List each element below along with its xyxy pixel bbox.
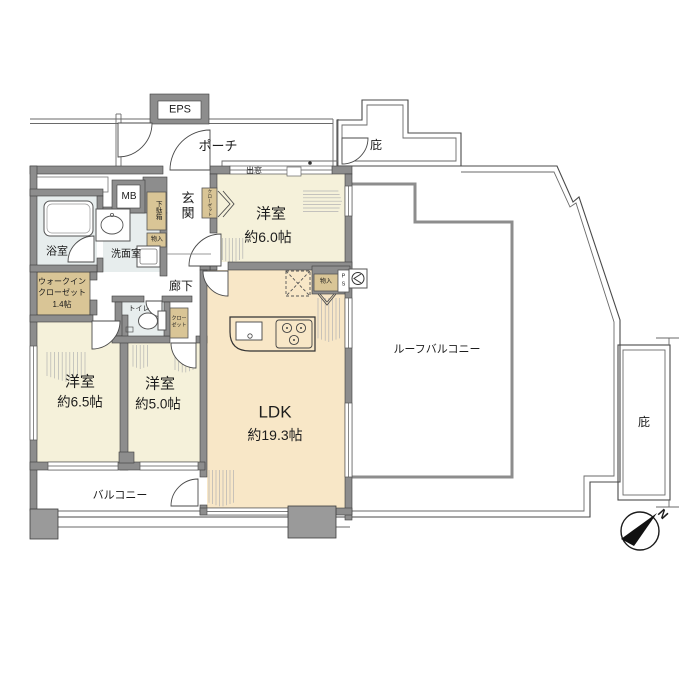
label-pipe-space-s: S [342, 282, 346, 288]
label-bedroom2-size: 約6.5帖 [57, 395, 103, 409]
label-pipe-space-p: P [342, 274, 346, 280]
label-storage-entrance: 物入 [151, 237, 163, 243]
label-bedroom3-name: 洋室 [145, 377, 175, 392]
floor-plan-drawing [0, 0, 700, 700]
label-ldk-name: LDK [258, 404, 291, 421]
label-toilet: トイレ [129, 306, 150, 313]
label-storage-ldk: 物入 [320, 279, 332, 285]
label-roof-balcony: ルーフバルコニー [393, 345, 480, 356]
vent-icon [349, 269, 367, 288]
label-wic-line2: クローゼット [38, 289, 86, 297]
compass [621, 512, 659, 550]
label-washroom: 洗面室 [111, 250, 141, 260]
label-bay-window: 出窓 [246, 167, 262, 175]
label-ldk-size: 約19.3帖 [247, 428, 302, 442]
label-shoe-box: 下駄箱 [154, 200, 161, 220]
label-meter-box: MB [122, 192, 137, 202]
label-hallway: 廊下 [169, 280, 193, 292]
label-closet-bedroom1: クローゼット [207, 189, 212, 217]
floor-plan: EPS ポーチ 庇 MB 玄関 下駄箱 物入 出窓 クローゼット 浴室 洗面室 … [0, 0, 700, 700]
label-closet-small-line1: クロー [171, 317, 186, 322]
label-wic-line3: 1.4帖 [52, 301, 71, 309]
label-bedroom3-size: 約5.0帖 [135, 397, 181, 411]
label-closet-small-line2: ゼット [171, 324, 186, 329]
label-entrance: 玄関 [181, 191, 194, 221]
roof-balcony-inner-border [352, 184, 512, 477]
label-bathroom: 浴室 [46, 247, 68, 258]
label-canopy-right: 庇 [638, 416, 650, 428]
label-canopy-top: 庇 [370, 139, 382, 151]
label-porch: ポーチ [198, 140, 237, 153]
label-bedroom1-name: 洋室 [256, 207, 286, 222]
label-balcony: バルコニー [93, 491, 148, 502]
label-bedroom1-size: 約6.0帖 [244, 230, 291, 244]
label-bedroom2-name: 洋室 [65, 375, 95, 390]
label-wic-line1: ウォークイン [38, 278, 86, 286]
label-eps: EPS [169, 105, 191, 116]
